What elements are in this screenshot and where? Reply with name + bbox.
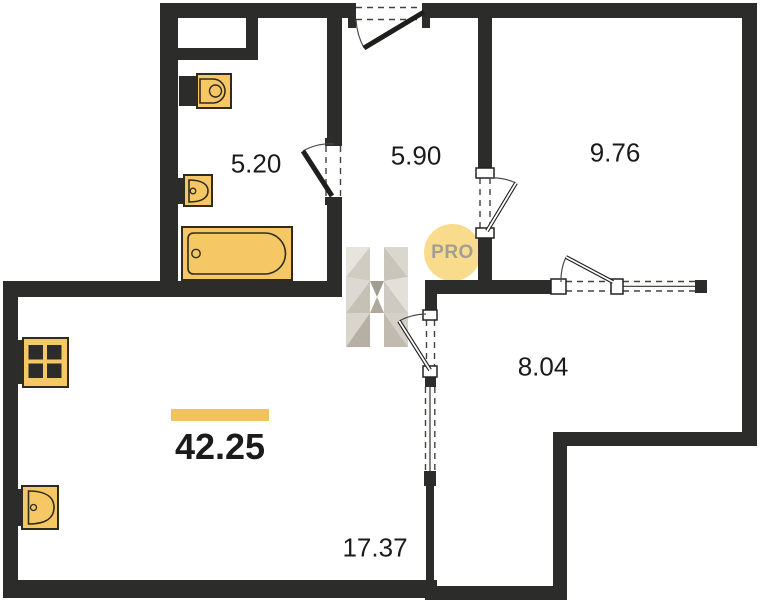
opening-dashes (326, 8, 695, 472)
wall-bathroom-hall-upper (327, 18, 342, 138)
room1-jamb-top (476, 168, 494, 178)
room-area-label-bathroom: 5.20 (231, 149, 282, 180)
bathtub-icon (182, 227, 292, 280)
wall-left-upper (160, 3, 178, 297)
wall-vertical-bottom-right (553, 432, 567, 600)
room1-jamb-bottom (476, 228, 494, 238)
wall-bottom-left (3, 580, 437, 598)
room-area-label-living-room: 17.37 (342, 533, 407, 564)
niche-wall-right (246, 18, 258, 60)
room1-door-leaf-fill (487, 183, 516, 231)
walls (3, 3, 757, 600)
partition-thin-wall (426, 486, 434, 586)
room-area-label-room-top-right: 9.76 (590, 138, 641, 169)
entrance-door-leaf (364, 12, 424, 48)
room2-jamb-left (551, 279, 566, 294)
wall-left-lower (3, 281, 18, 598)
living-door-dashes (427, 320, 435, 366)
wall-horizontal-left (3, 281, 342, 297)
wall-right (742, 3, 757, 446)
room1-door-dashes (480, 178, 490, 228)
bathroom-door-leaf (303, 151, 332, 196)
bathroom-door-jamb-top (325, 138, 342, 146)
wall-top-right (430, 3, 757, 18)
partition-block-low (424, 471, 436, 486)
total-area-accent-bar (171, 409, 269, 421)
wall-bottom-right (425, 586, 567, 600)
total-area-label: 42.25 (175, 426, 265, 468)
bathroom-sink-icon (178, 175, 212, 206)
floor-plan: PRO (0, 0, 760, 600)
room-area-label-hallway: 5.90 (391, 141, 442, 172)
toilet-icon (179, 74, 231, 108)
stove-icon (18, 338, 68, 387)
bathroom-door-jamb-bottom (325, 197, 342, 205)
partition-stub (425, 294, 437, 311)
partition-block-mid (425, 377, 436, 387)
room2-door-dashes (566, 282, 611, 292)
wall-hall-room-upper (478, 18, 492, 168)
entrance-jamb-right (422, 3, 430, 28)
wall-horizontal-center (425, 280, 553, 294)
entrance-jamb-left (348, 3, 356, 28)
h-logo-watermark-icon (346, 247, 408, 347)
room2-door-leaf-fill (566, 257, 613, 282)
room-area-label-room-right: 8.04 (518, 352, 569, 383)
floor-plan-drawing (0, 0, 760, 600)
wall-room-right-bottom (553, 432, 757, 446)
wall-top-left (160, 3, 348, 18)
kitchen-sink-icon (18, 486, 58, 529)
window-end-block (695, 280, 707, 293)
living-jamb-top (423, 310, 437, 320)
entrance-door-arc (356, 20, 364, 48)
